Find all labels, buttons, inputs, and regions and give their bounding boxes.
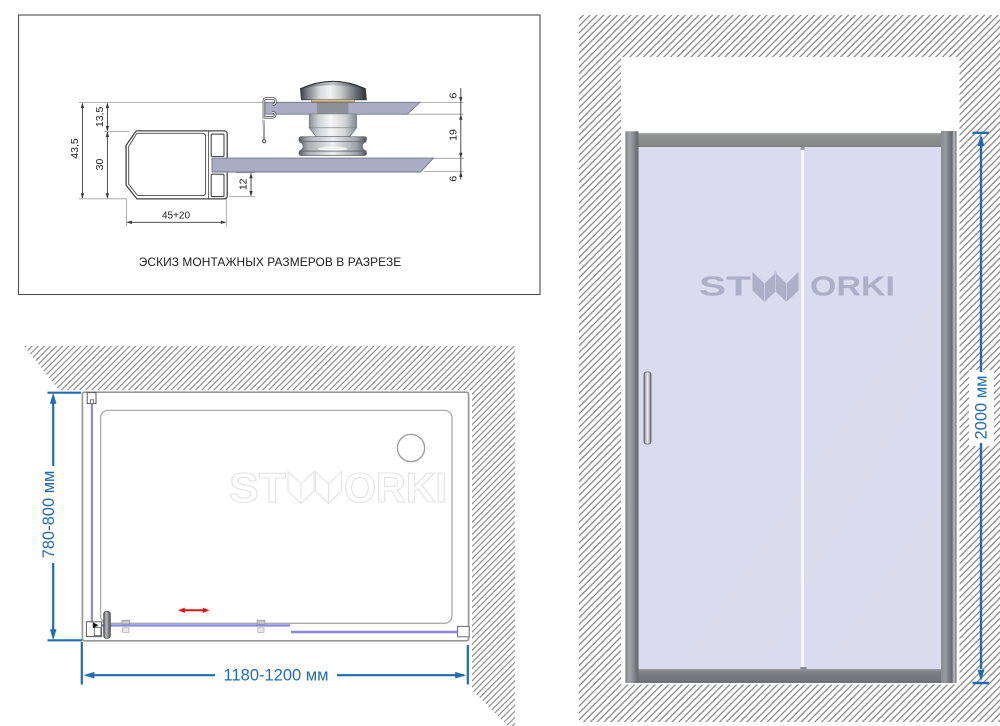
svg-text:12: 12	[237, 178, 249, 190]
svg-text:13,5: 13,5	[94, 107, 106, 128]
svg-text:2000 мм: 2000 мм	[973, 376, 991, 440]
svg-text:ST: ST	[229, 464, 286, 511]
svg-text:ЭСКИЗ МОНТАЖНЫХ РАЗМЕРОВ В РАЗ: ЭСКИЗ МОНТАЖНЫХ РАЗМЕРОВ В РАЗРЕЗЕ	[139, 255, 402, 269]
svg-text:6: 6	[447, 176, 459, 182]
svg-text:ST: ST	[699, 271, 751, 302]
svg-text:1180-1200 мм: 1180-1200 мм	[224, 667, 329, 685]
svg-text:6: 6	[447, 93, 459, 99]
svg-text:ORKI: ORKI	[810, 271, 895, 302]
svg-text:ORKI: ORKI	[344, 464, 447, 511]
svg-text:30: 30	[94, 159, 106, 171]
svg-text:43,5: 43,5	[69, 138, 81, 159]
svg-text:19: 19	[448, 129, 460, 141]
svg-text:45+20: 45+20	[162, 211, 191, 222]
svg-text:780-800 мм: 780-800 мм	[40, 471, 58, 559]
